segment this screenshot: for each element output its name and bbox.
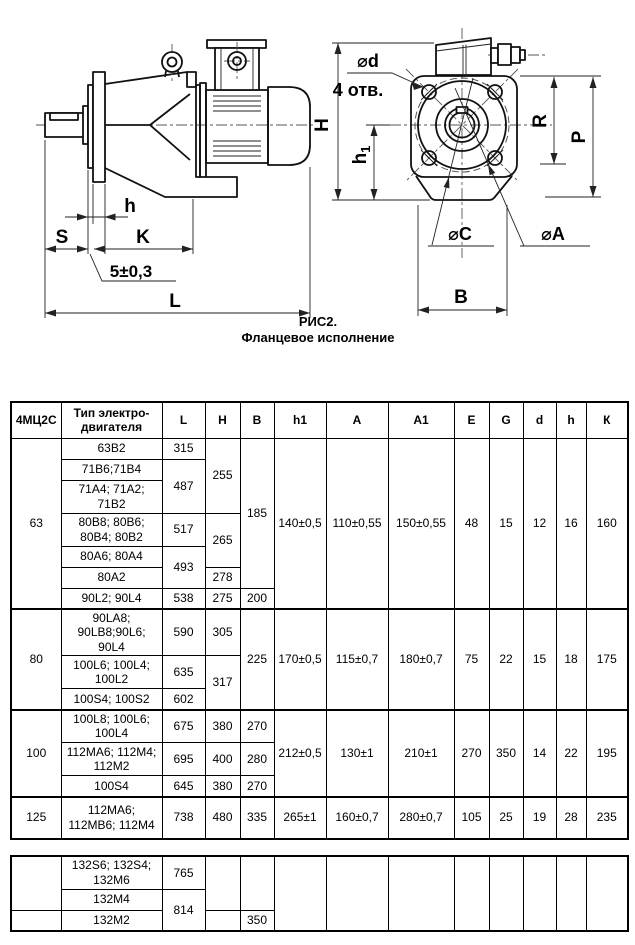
cell-B: 350 [240, 910, 274, 931]
cell-d: 14 [523, 710, 556, 797]
cell-K: 235 [586, 797, 628, 839]
cell-A1: 280±0,7 [388, 797, 454, 839]
side-view: h S K 5±0,3 L [36, 40, 316, 318]
dim-label-h: h [124, 196, 136, 217]
dimensions-table-main: 4МЦ2С Тип электро- двигателя L H B h1 A … [10, 401, 629, 840]
dim-label-b: B [454, 287, 468, 308]
col-header-L: L [162, 402, 205, 438]
cell-L: 814 [162, 889, 205, 931]
cell-E: 75 [454, 609, 489, 710]
col-header-motor-type: Тип электро- двигателя [61, 402, 162, 438]
cell-B: 280 [240, 743, 274, 776]
dim-label-s: S [56, 227, 69, 248]
shaft-key [50, 113, 78, 120]
dim-label-cap-h: H [312, 118, 333, 132]
housing-step [187, 72, 196, 87]
cell-B: 185 [240, 438, 274, 588]
mounting-flange [93, 72, 105, 182]
dim-label-p: P [569, 130, 590, 143]
cell-motor-type: 132М4 [61, 889, 162, 910]
dim-label-dia-c: ⌀C [448, 224, 472, 244]
cell-series-empty [11, 856, 61, 910]
cell-K: 160 [586, 438, 628, 609]
cell-H: 380 [205, 710, 240, 743]
front-view: ⌀d 4 отв. H h1 R P ⌀C ⌀A B [312, 28, 601, 316]
col-header-A: A [326, 402, 388, 438]
cell-series: 100 [11, 710, 61, 797]
cell-motor-type: 100L6; 100L4; 100L2 [61, 656, 162, 689]
cell-H: 305 [205, 609, 240, 656]
cell-A: 160±0,7 [326, 797, 388, 839]
table-row: 100 100L8; 100L6; 100L4 675 380 270 212±… [11, 710, 628, 743]
cell-H-empty [205, 856, 240, 910]
col-header-E: E [454, 402, 489, 438]
col-header-G: G [489, 402, 523, 438]
cell-motor-type: 132М2 [61, 910, 162, 931]
housing-rib-lines [105, 94, 190, 160]
cell-h1: 140±0,5 [274, 438, 326, 609]
cell-H: 480 [205, 797, 240, 839]
col-header-B: B [240, 402, 274, 438]
col-header-d: d [523, 402, 556, 438]
col-header-H: H [205, 402, 240, 438]
cell-G: 22 [489, 609, 523, 710]
cell-motor-type: 80В8; 80В6; 80В4; 80В2 [61, 513, 162, 546]
cell-motor-type: 112МА6; 112МВ6; 112М4 [61, 797, 162, 839]
cell-L: 517 [162, 513, 205, 546]
cell-B: 200 [240, 588, 274, 609]
cell-K-empty [586, 856, 628, 931]
cell-B: 270 [240, 776, 274, 797]
cell-H: 278 [205, 567, 240, 588]
cell-H: 255 [205, 438, 240, 513]
cell-A1: 180±0,7 [388, 609, 454, 710]
cell-motor-type: 71А4; 71А2; 71В2 [61, 480, 162, 513]
cell-A: 115±0,7 [326, 609, 388, 710]
dimensions-table-extra: 132S6; 132S4; 132М6 765 132М4 814 132М2 … [10, 855, 629, 932]
flange-foot [416, 176, 512, 200]
cell-d: 19 [523, 797, 556, 839]
cell-h: 22 [556, 710, 586, 797]
col-header-h: h [556, 402, 586, 438]
dim-label-r: R [530, 114, 551, 128]
cell-K: 195 [586, 710, 628, 797]
cell-motor-type: 100L8; 100L6; 100L4 [61, 710, 162, 743]
cell-series: 125 [11, 797, 61, 839]
cell-L: 493 [162, 546, 205, 588]
dim-label-holes: 4 отв. [333, 80, 383, 100]
motor-end-cap [268, 87, 310, 165]
col-header-h1: h1 [274, 402, 326, 438]
figure-caption-number: РИС2. [299, 314, 337, 329]
cell-motor-type: 71В6;71В4 [61, 459, 162, 480]
cell-motor-type: 132S6; 132S4; 132М6 [61, 856, 162, 889]
cell-E: 270 [454, 710, 489, 797]
cell-motor-type: 80А6; 80А4 [61, 546, 162, 567]
cell-A1: 150±0,55 [388, 438, 454, 609]
col-header-A1: A1 [388, 402, 454, 438]
dim-label-h1: h1 [350, 146, 373, 165]
cell-motor-type: 63В2 [61, 438, 162, 459]
terminal-box-lid [207, 40, 266, 48]
cell-A: 110±0,55 [326, 438, 388, 609]
cell-B: 225 [240, 609, 274, 710]
cell-L: 695 [162, 743, 205, 776]
cell-L: 675 [162, 710, 205, 743]
cable-gland [491, 44, 525, 65]
cell-L: 645 [162, 776, 205, 797]
cell-H: 400 [205, 743, 240, 776]
technical-drawing: h S K 5±0,3 L [0, 0, 635, 390]
col-header-K: К [586, 402, 628, 438]
cell-L: 738 [162, 797, 205, 839]
cell-H: 380 [205, 776, 240, 797]
cell-H: 265 [205, 513, 240, 567]
cell-L: 765 [162, 856, 205, 889]
cell-h1: 265±1 [274, 797, 326, 839]
figure-caption-title: Фланцевое исполнение [241, 330, 394, 345]
cell-G-empty [489, 856, 523, 931]
cell-L: 538 [162, 588, 205, 609]
dim-label-l: L [169, 291, 181, 312]
cell-A-empty [326, 856, 388, 931]
cell-L: 315 [162, 438, 205, 459]
dim-label-tolerance: 5±0,3 [110, 262, 152, 281]
cell-motor-type: 80А2 [61, 567, 162, 588]
motor-fins [213, 96, 261, 156]
table-row: 80 90LA8; 90LB8;90L6; 90L4 590 305 225 1… [11, 609, 628, 656]
cell-K: 175 [586, 609, 628, 710]
cell-B: 270 [240, 710, 274, 743]
cell-G: 25 [489, 797, 523, 839]
cell-L: 487 [162, 459, 205, 513]
cell-motor-type: 90LA8; 90LB8;90L6; 90L4 [61, 609, 162, 656]
eyebolt [162, 52, 182, 72]
cell-A1-empty [388, 856, 454, 931]
cell-h-empty [556, 856, 586, 931]
cell-motor-type: 90L2; 90L4 [61, 588, 162, 609]
cell-H-empty [205, 910, 240, 931]
cell-B: 335 [240, 797, 274, 839]
cell-E: 105 [454, 797, 489, 839]
cell-d-empty [523, 856, 556, 931]
cell-motor-type: 112МА6; 112М4; 112М2 [61, 743, 162, 776]
header-row: 4МЦ2С Тип электро- двигателя L H B h1 A … [11, 402, 628, 438]
cell-L: 635 [162, 656, 205, 689]
cell-series-empty [11, 910, 61, 931]
cell-h1: 170±0,5 [274, 609, 326, 710]
cell-L: 602 [162, 689, 205, 710]
cell-B-empty [240, 856, 274, 910]
col-header-series: 4МЦ2С [11, 402, 61, 438]
cell-d: 15 [523, 609, 556, 710]
cell-d: 12 [523, 438, 556, 609]
cell-A1: 210±1 [388, 710, 454, 797]
gear-housing [105, 72, 187, 84]
cell-series: 63 [11, 438, 61, 609]
cell-E: 48 [454, 438, 489, 609]
cell-h: 28 [556, 797, 586, 839]
cell-A: 130±1 [326, 710, 388, 797]
cell-h: 18 [556, 609, 586, 710]
dim-label-dia-a: ⌀A [541, 224, 565, 244]
catalog-page: h S K 5±0,3 L [0, 0, 635, 945]
cell-h: 16 [556, 438, 586, 609]
table-row: 125 112МА6; 112МВ6; 112М4 738 480 335 26… [11, 797, 628, 839]
table-row: 132S6; 132S4; 132М6 765 [11, 856, 628, 889]
cell-G: 15 [489, 438, 523, 609]
cell-h1-empty [274, 856, 326, 931]
cell-H: 275 [205, 588, 240, 609]
cell-G: 350 [489, 710, 523, 797]
terminal-box-front [436, 38, 491, 75]
cell-L: 590 [162, 609, 205, 656]
cell-motor-type: 100S4; 100S2 [61, 689, 162, 710]
dim-label-k: K [136, 227, 150, 248]
cell-h1: 212±0,5 [274, 710, 326, 797]
cell-series: 80 [11, 609, 61, 710]
dim-label-dia-d: ⌀d [357, 51, 379, 71]
table-row: 63 63В2 315 255 185 140±0,5 110±0,55 150… [11, 438, 628, 459]
cell-E-empty [454, 856, 489, 931]
cell-H: 317 [205, 656, 240, 710]
cell-motor-type: 100S4 [61, 776, 162, 797]
